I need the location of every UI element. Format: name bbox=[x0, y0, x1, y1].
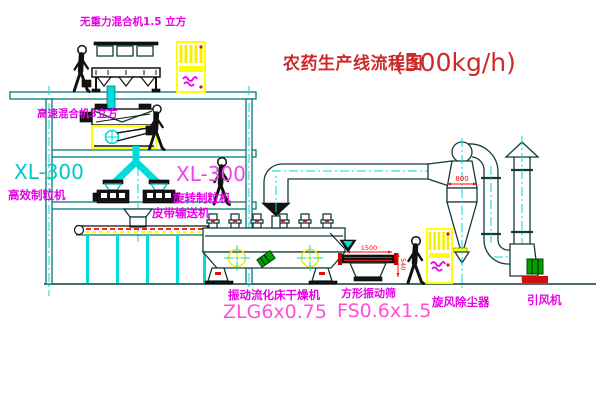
gravity-free-mixer bbox=[82, 42, 160, 112]
induced-draft-fan bbox=[510, 244, 548, 283]
diagram-capacity: (500kg/h) bbox=[394, 48, 516, 77]
model-granulator-right: XL-300 bbox=[176, 162, 246, 186]
dim-cyclone-diameter: 800 bbox=[455, 175, 468, 183]
dim-sieve-height: 540 bbox=[399, 258, 407, 270]
feed-elbow-duct bbox=[262, 164, 450, 228]
square-sieve bbox=[330, 233, 400, 281]
granulator-left-unit bbox=[93, 180, 129, 203]
label-granulator-left: 高效制粒机 bbox=[8, 188, 66, 202]
belt-conveyor bbox=[75, 226, 216, 284]
cabinet-band bbox=[179, 66, 203, 72]
worker-figure-ground bbox=[408, 237, 424, 284]
control-cabinet-top bbox=[177, 42, 205, 92]
label-granulator-right: 旋转制粒机 bbox=[172, 191, 231, 205]
floor-slab-top bbox=[10, 92, 256, 99]
dryer-foot-left bbox=[205, 268, 233, 284]
floor-slab-mid bbox=[46, 150, 256, 157]
fan-base bbox=[522, 276, 548, 283]
control-cabinet-ground bbox=[427, 229, 452, 283]
model-sieve: FS0.6x1.5 bbox=[337, 300, 431, 322]
cabinet-band bbox=[429, 253, 450, 258]
label-fan: 引风机 bbox=[527, 293, 562, 307]
label-mid-mixer: 高速混合机3立方 bbox=[37, 107, 118, 120]
label-belt-conveyor: 皮带输送机 bbox=[151, 206, 210, 220]
process-flow-diagram: 无重力混合机1.5 立方 农药生产线流程图 (500kg/h) 高速混合机3立方… bbox=[0, 0, 600, 403]
model-granulator-left: XL-300 bbox=[14, 160, 84, 184]
label-dryer: 振动流化床干燥机 bbox=[228, 288, 320, 302]
dryer-stubs bbox=[207, 214, 333, 228]
label-top-mixer: 无重力混合机1.5 立方 bbox=[79, 15, 187, 28]
dim-sieve-length: 1500 bbox=[361, 244, 378, 252]
model-dryer: ZLG6x0.75 bbox=[223, 301, 327, 323]
mixer-base-frame bbox=[92, 126, 156, 148]
dryer-foot-right bbox=[309, 268, 337, 284]
label-sieve: 方形振动筛 bbox=[341, 286, 396, 300]
pulley-left bbox=[75, 226, 84, 235]
discharge-hopper bbox=[124, 209, 152, 227]
label-cyclone: 旋风除尘器 bbox=[431, 295, 490, 309]
fan-motor-icon bbox=[527, 259, 543, 274]
diagram-canvas: 无重力混合机1.5 立方 农药生产线流程图 (500kg/h) 高速混合机3立方… bbox=[0, 0, 600, 403]
